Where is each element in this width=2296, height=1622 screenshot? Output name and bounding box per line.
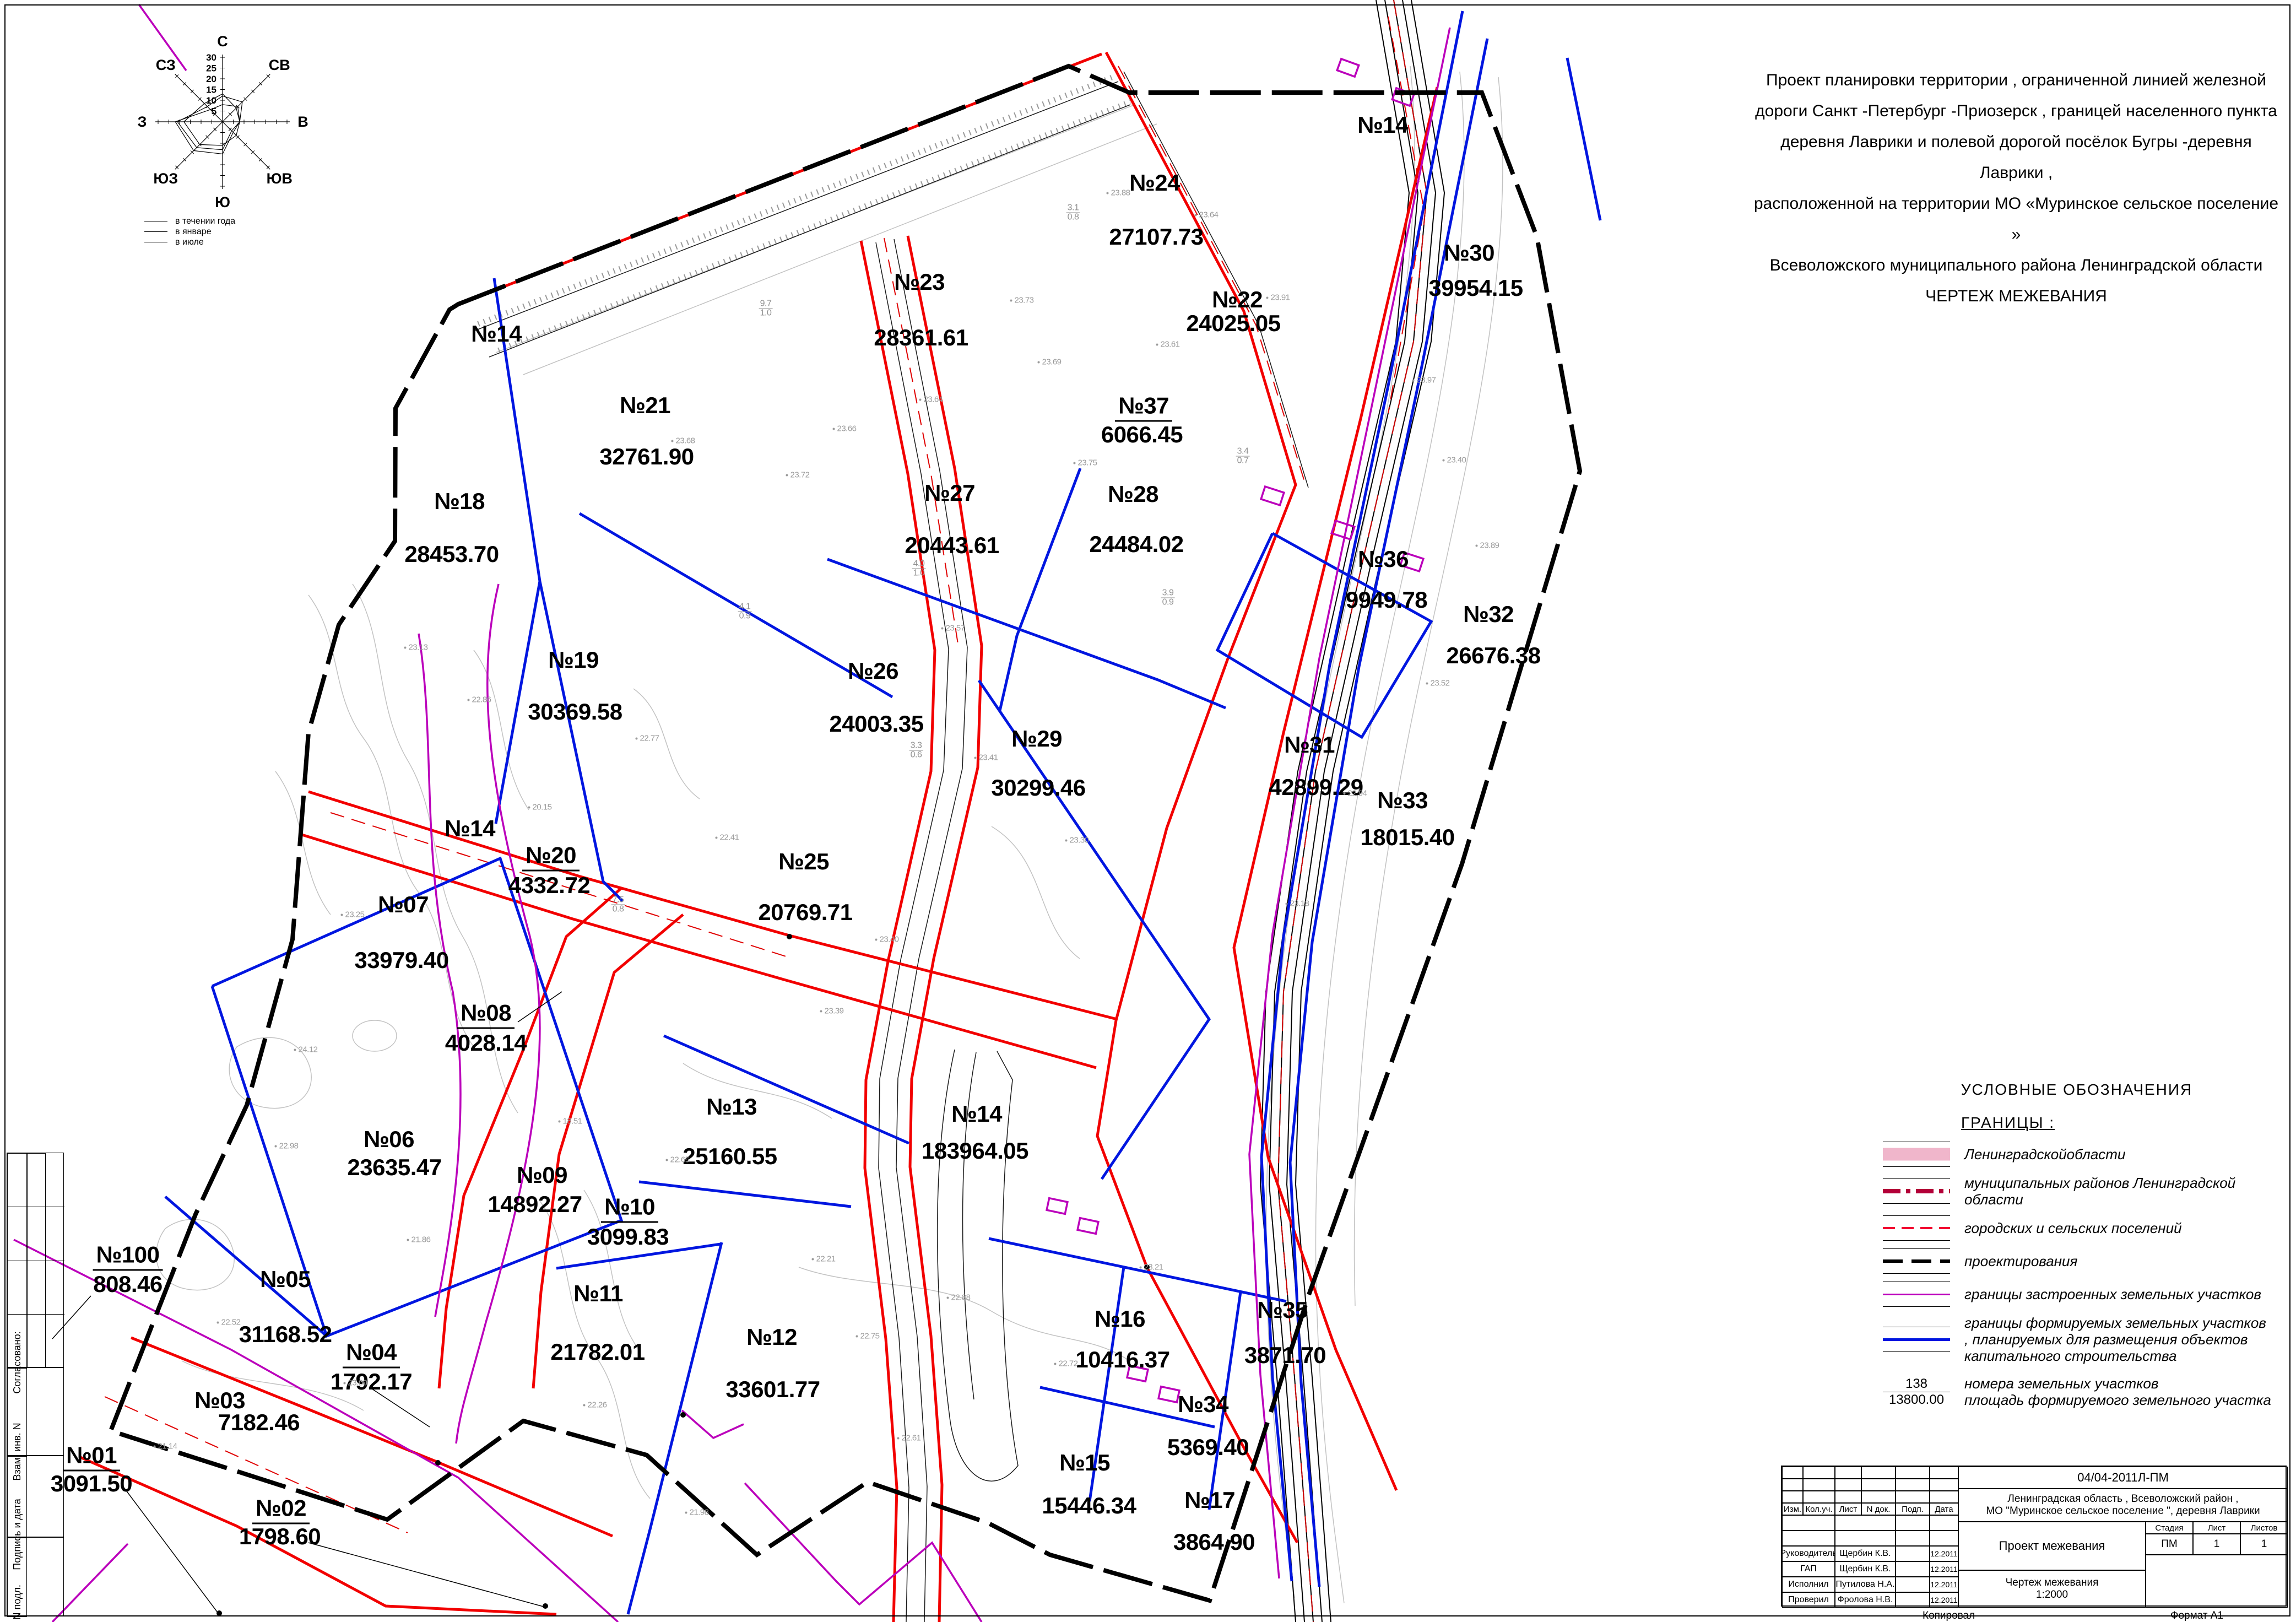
svg-text:СЗ: СЗ xyxy=(156,57,176,73)
spot-dot xyxy=(897,1437,899,1440)
oblast-boundary-swatch xyxy=(1883,1142,1950,1167)
title-line: ЧЕРТЕЖ МЕЖЕВАНИЯ xyxy=(1752,281,2281,312)
legend-numbers-example: 138 13800.00 номера земельных участков п… xyxy=(1873,1375,2281,1408)
spot-elevation: 22.65 xyxy=(665,1155,689,1165)
spot-elevation: 23.40 xyxy=(1442,456,1466,465)
spot-dot xyxy=(407,1239,409,1241)
parcel-number: №11 xyxy=(573,1280,623,1307)
parcel-area: 4028.14 xyxy=(445,1030,527,1056)
spot-elevation: 22.26 xyxy=(583,1401,607,1410)
spot-dot xyxy=(1343,793,1345,795)
spot-elevation: 23.13 xyxy=(404,643,427,652)
parcel-area: 20769.71 xyxy=(758,899,852,926)
spot-elevation: 22.77 xyxy=(635,734,659,743)
tb-date: 12.2011 xyxy=(1930,1546,1958,1561)
svg-text:30: 30 xyxy=(206,52,216,63)
spot-elevation: 23.21 xyxy=(1139,1263,1163,1272)
parcel-number: №24 xyxy=(1129,170,1180,196)
spot-elevation: 23.30 xyxy=(1065,836,1089,845)
spot-elevation: 22.21 xyxy=(811,1255,835,1264)
spot-dot xyxy=(528,807,530,809)
spot-dot xyxy=(941,628,943,630)
tb-list-col: Лист xyxy=(2193,1522,2240,1534)
spot-elevation: 22.98 xyxy=(274,1142,298,1151)
parcel-number: №33 xyxy=(1377,787,1428,814)
parcel-number: №36 xyxy=(1358,546,1409,572)
parcel-number: №32 xyxy=(1463,601,1514,628)
spot-elevation: 23.18 xyxy=(1285,899,1309,909)
parcel-area: 25160.55 xyxy=(683,1143,777,1170)
tb-role: ГАП xyxy=(1782,1561,1835,1577)
spot-elevation: 18.51 xyxy=(558,1117,582,1126)
road-width-note: 9.71.0 xyxy=(759,300,773,318)
legend-line-sample xyxy=(144,221,167,221)
title-line: деревня Лаврики и полевой дорогой посёло… xyxy=(1752,127,2281,188)
parcel-area: 31168.52 xyxy=(239,1321,332,1348)
svg-text:ЮЗ: ЮЗ xyxy=(153,170,178,187)
parcel-area: 32761.90 xyxy=(599,444,694,470)
spot-dot xyxy=(1194,214,1196,217)
road-width-note: 3.30.6 xyxy=(909,742,923,760)
spot-dot xyxy=(1475,545,1477,547)
spot-elevation: 23.61 xyxy=(1156,340,1179,349)
tb-date: 12.2011 xyxy=(1930,1577,1958,1592)
tb-name: Щербин К.В. xyxy=(1835,1546,1896,1561)
road-width-note: 3.40.7 xyxy=(1236,447,1250,466)
parcel-number: №25 xyxy=(778,848,829,875)
legend-label: в течении года xyxy=(175,217,235,226)
parcel-number: №01 xyxy=(63,1442,120,1472)
tb-stage-col: Стадия xyxy=(2146,1522,2193,1534)
parcel-area: 183964.05 xyxy=(922,1138,1028,1164)
parcel-number: №27 xyxy=(924,480,975,506)
spot-dot xyxy=(294,1049,296,1051)
spot-elevation: 23.72 xyxy=(786,471,809,480)
spot-dot xyxy=(1010,300,1012,302)
spot-dot xyxy=(832,428,835,430)
svg-text:В: В xyxy=(297,113,308,130)
legend-item: границы застроенных земельных участков xyxy=(1873,1282,2281,1307)
spot-dot xyxy=(1037,361,1039,364)
legend-label: в январе xyxy=(175,227,211,237)
legend-item: муниципальных районов Ленинградской обла… xyxy=(1873,1175,2281,1208)
parcel-area: 15446.34 xyxy=(1042,1493,1136,1519)
parcel-number: №100 xyxy=(93,1242,163,1271)
tb-listov-val: 1 xyxy=(2240,1534,2288,1555)
wind-rose-legend-row: в январе xyxy=(144,226,235,237)
spot-dot xyxy=(671,440,673,442)
spot-dot xyxy=(1106,192,1108,194)
spot-dot xyxy=(855,1336,858,1338)
parcel-number: №26 xyxy=(848,658,898,684)
strip-inv-podl: Инв. N подл. xyxy=(12,1585,23,1622)
spot-dot xyxy=(558,1121,560,1123)
spot-dot xyxy=(811,1258,814,1261)
spot-dot xyxy=(1285,903,1287,905)
spot-dot xyxy=(1442,459,1444,462)
svg-text:20: 20 xyxy=(206,74,216,84)
tb-name: Фролова Н.В. xyxy=(1835,1592,1896,1608)
tb-role: Проверил xyxy=(1782,1592,1835,1608)
tb-col-ndok: N док. xyxy=(1861,1503,1896,1515)
parcel-area: 33601.77 xyxy=(725,1376,820,1403)
tb-role: Руководитель xyxy=(1782,1546,1835,1561)
parcel-area: 28453.70 xyxy=(404,541,499,567)
spot-elevation: 23.57 xyxy=(941,624,965,633)
road-width-note: 3.10.8 xyxy=(1066,204,1080,222)
parcel-area: 6066.45 xyxy=(1101,421,1183,448)
road-width-note: 7.50.8 xyxy=(611,896,625,914)
spot-elevation: 23.91 xyxy=(1266,293,1290,302)
parcel-area: 23635.47 xyxy=(347,1154,441,1181)
spot-dot xyxy=(635,738,637,740)
spot-dot xyxy=(1156,344,1158,346)
legend-label: в июле xyxy=(175,237,204,247)
parcel-area: 24025.05 xyxy=(1186,310,1280,337)
spot-dot xyxy=(340,914,343,916)
spot-elevation: 22.94 xyxy=(1343,789,1367,798)
spot-dot xyxy=(1412,380,1414,382)
drawing-sheet: Согласовано: Взам. инв. N Подпись и дата… xyxy=(0,0,2296,1622)
parcel-number-example: 138 13800.00 xyxy=(1883,1376,1950,1408)
title-line: Всеволожского муниципального района Лени… xyxy=(1752,250,2281,281)
parcel-area: 808.46 xyxy=(93,1271,162,1297)
spot-elevation: 23.88 xyxy=(1106,188,1130,198)
parcel-area: 14892.27 xyxy=(488,1191,582,1218)
svg-text:15: 15 xyxy=(206,85,216,95)
tb-location: Ленинградская область , Всеволожский рай… xyxy=(1958,1489,2288,1522)
tb-role: Исполнил xyxy=(1782,1577,1835,1592)
tb-col-data: Дата xyxy=(1930,1503,1958,1515)
parcel-number: №13 xyxy=(706,1094,757,1120)
parcel-area: 3099.83 xyxy=(587,1224,669,1250)
legend-title: УСЛОВНЫЕ ОБОЗНАЧЕНИЯ xyxy=(1873,1081,2281,1099)
spot-dot xyxy=(216,1322,219,1324)
parcel-number: №10 xyxy=(601,1194,658,1223)
tb-col-list: Лист xyxy=(1835,1503,1861,1515)
parcel-number: №23 xyxy=(894,269,945,295)
parcel-area: 1792.17 xyxy=(331,1369,412,1395)
spot-dot xyxy=(685,1512,687,1514)
parcel-area: 3871.70 xyxy=(1244,1342,1326,1369)
road-width-note: 4.01.0 xyxy=(912,560,926,578)
map-legend: УСЛОВНЫЕ ОБОЗНАЧЕНИЯ ГРАНИЦЫ : Ленинград… xyxy=(1873,1081,2281,1408)
legend-item-label: границы формируемых земельных участков ,… xyxy=(1964,1315,2273,1364)
parcel-number: №31 xyxy=(1284,732,1335,758)
parcel-area: 20443.61 xyxy=(905,532,999,559)
parcel-area: 27107.73 xyxy=(1109,224,1203,250)
spot-elevation: 23.66 xyxy=(832,424,856,434)
spot-elevation: 23.39 xyxy=(820,1007,843,1016)
svg-text:25: 25 xyxy=(206,63,216,74)
legend-item: Ленинградскойобласти xyxy=(1873,1142,2281,1167)
spot-elevation: 23.25 xyxy=(340,910,364,920)
parcel-number: №37 xyxy=(1115,393,1172,422)
parcel-area: 10416.37 xyxy=(1075,1347,1169,1373)
parcel-area: 3091.50 xyxy=(51,1470,132,1497)
spot-dot xyxy=(946,1297,949,1299)
title-line: Проект планировки территории , ограничен… xyxy=(1752,65,2281,96)
municipal-boundary-swatch xyxy=(1883,1178,1950,1204)
spot-dot xyxy=(1065,840,1067,842)
tb-stage-val: ПМ xyxy=(2146,1534,2193,1555)
legend-item: проектирования xyxy=(1873,1248,2281,1274)
parcel-number: №19 xyxy=(548,647,599,673)
tb-format: Формат А1 xyxy=(2170,1610,2223,1622)
spot-dot xyxy=(404,647,406,649)
spot-elevation: 23.73 xyxy=(1010,296,1033,305)
parcel-number: №22 xyxy=(1212,286,1263,313)
tb-col-koluch: Кол.уч. xyxy=(1803,1503,1835,1515)
parcel-number: №14 xyxy=(1357,112,1408,138)
legend-item-label: городских и сельских поселений xyxy=(1964,1220,2182,1236)
parcel-number: №15 xyxy=(1059,1450,1110,1476)
spot-dot xyxy=(875,939,877,941)
parcel-number: №07 xyxy=(378,891,429,918)
spot-elevation: 22.41 xyxy=(715,833,739,842)
tb-name: Щербин К.В. xyxy=(1835,1561,1896,1577)
spot-dot xyxy=(919,399,921,401)
parcel-number: №08 xyxy=(457,1000,515,1029)
spot-dot xyxy=(974,757,976,759)
parcel-number: №28 xyxy=(1108,481,1158,507)
parcel-number: №06 xyxy=(364,1126,414,1153)
spot-dot xyxy=(1139,1267,1141,1269)
parcel-number: №18 xyxy=(434,488,485,515)
parcel-number: №21 xyxy=(620,392,670,419)
tb-name: Путилова Н.А. xyxy=(1835,1577,1896,1592)
title-line: расположенной на территории МО «Муринско… xyxy=(1752,188,2281,250)
svg-text:З: З xyxy=(138,113,147,130)
tb-drawing: Чертеж межевания 1:2000 xyxy=(1958,1570,2146,1608)
spot-elevation: 22.75 xyxy=(855,1332,879,1341)
spot-elevation: 23.41 xyxy=(974,753,998,763)
road-width-note: 4.10.9 xyxy=(738,603,752,621)
spot-elevation: 22.52 xyxy=(216,1318,240,1327)
parcel-number: №34 xyxy=(1178,1391,1228,1418)
legend-item: границы формируемых земельных участков ,… xyxy=(1873,1315,2281,1364)
spot-elevation: 23.64 xyxy=(919,395,943,404)
spot-elevation: 22.88 xyxy=(946,1293,970,1302)
spot-dot xyxy=(1073,462,1075,464)
spot-elevation: 21.86 xyxy=(407,1235,430,1245)
parcel-area: 30299.46 xyxy=(991,775,1085,801)
parcel-number: №16 xyxy=(1095,1306,1145,1332)
spot-elevation: 24.12 xyxy=(294,1045,317,1055)
spot-elevation: 23.75 xyxy=(1073,458,1097,468)
spot-dot xyxy=(274,1145,277,1148)
spot-elevation: 21.98 xyxy=(685,1508,708,1517)
parcel-area: 30369.58 xyxy=(528,699,622,725)
svg-text:С: С xyxy=(217,33,228,50)
legend-numbers-labels: номера земельных участков площадь формир… xyxy=(1964,1375,2271,1408)
legend-subtitle: ГРАНИЦЫ : xyxy=(1961,1114,2281,1132)
parcel-number: №09 xyxy=(517,1162,567,1188)
parcel-number: №05 xyxy=(260,1266,311,1293)
svg-text:СВ: СВ xyxy=(269,57,290,73)
settlement-boundary-swatch xyxy=(1883,1215,1950,1241)
parcel-number: №29 xyxy=(1011,726,1062,752)
tb-org-box xyxy=(2146,1555,2288,1608)
parcel-area: 28361.61 xyxy=(874,325,968,351)
parcel-number: №35 xyxy=(1257,1297,1308,1323)
tb-project: Проект межевания xyxy=(1958,1522,2146,1570)
spot-elevation: 22.86 xyxy=(467,695,491,705)
parcel-area: 18015.40 xyxy=(1360,824,1454,851)
spot-dot xyxy=(820,1010,822,1013)
legend-item-label: проектирования xyxy=(1964,1253,2077,1269)
wind-rose-legend: в течении года в январе в июле xyxy=(144,216,235,247)
tb-date: 12.2011 xyxy=(1930,1561,1958,1577)
built-parcel-swatch xyxy=(1883,1282,1950,1307)
spot-elevation: 23.68 xyxy=(671,436,695,446)
spot-elevation: 22.72 xyxy=(1054,1359,1077,1369)
legend-line-sample xyxy=(144,242,167,242)
spot-dot xyxy=(343,1382,345,1385)
title-line: дороги Санкт -Петербург -Приозерск , гра… xyxy=(1752,96,2281,127)
parcel-area: 24003.35 xyxy=(829,711,923,737)
spot-dot xyxy=(467,699,469,701)
parcel-area: 1798.60 xyxy=(239,1523,321,1550)
parcel-area: 24484.02 xyxy=(1089,531,1183,558)
tb-list-val: 1 xyxy=(2193,1534,2240,1555)
spot-elevation: 23.52 xyxy=(1426,679,1449,688)
parcel-area: 5369.40 xyxy=(1167,1434,1249,1461)
legend-item-label: муниципальных районов Ленинградской обла… xyxy=(1964,1175,2273,1208)
parcel-area: 9949.78 xyxy=(1346,587,1427,613)
spot-dot xyxy=(665,1159,668,1161)
parcel-area: 33979.40 xyxy=(354,947,448,974)
spot-elevation: 23.89 xyxy=(1475,541,1499,550)
spot-dot xyxy=(786,474,788,477)
spot-dot xyxy=(583,1404,585,1407)
parcel-number: №17 xyxy=(1184,1487,1235,1513)
design-boundary-swatch xyxy=(1883,1248,1950,1274)
parcel-number: №14 xyxy=(445,815,495,842)
wind-rose-chart: ССВВЮВЮЮЗЗСЗ30252015105 xyxy=(88,22,364,231)
road-width-note: 3.90.9 xyxy=(1161,589,1175,607)
parcel-area: 39954.15 xyxy=(1428,275,1523,301)
wind-rose-legend-row: в течении года xyxy=(144,216,235,226)
spot-elevation: 21.14 xyxy=(153,1442,177,1451)
spot-elevation: 23.40 xyxy=(875,935,898,944)
spot-dot xyxy=(1266,297,1268,299)
tb-document-code: 04/04-2011Л-ПМ xyxy=(1958,1467,2288,1489)
parcel-area: 26676.38 xyxy=(1446,642,1540,669)
parcel-number: №30 xyxy=(1444,240,1494,266)
svg-text:ЮВ: ЮВ xyxy=(267,170,293,187)
legend-line-sample xyxy=(144,231,167,232)
spot-elevation: 23.00 xyxy=(343,1378,367,1388)
formed-parcel-swatch xyxy=(1883,1327,1950,1352)
parcel-number: №14 xyxy=(471,321,522,347)
spot-elevation: 23.64 xyxy=(1194,210,1218,220)
spot-elevation: 23.69 xyxy=(1037,358,1061,367)
spot-elevation: 22.61 xyxy=(897,1434,920,1443)
parcel-number: №20 xyxy=(522,842,580,872)
parcel-area: 4332.72 xyxy=(508,872,590,899)
tb-copied: Копировал xyxy=(1923,1610,1975,1622)
legend-item-label: Ленинградскойобласти xyxy=(1964,1146,2125,1163)
drawing-title: Проект планировки территории , ограничен… xyxy=(1752,65,2281,312)
tb-listov-col: Листов xyxy=(2240,1522,2288,1534)
spot-elevation: 20.15 xyxy=(528,803,551,812)
tb-col-podp: Подп. xyxy=(1896,1503,1930,1515)
parcel-number: №04 xyxy=(343,1339,400,1369)
legend-item-label: границы застроенных земельных участков xyxy=(1964,1286,2261,1302)
svg-text:Ю: Ю xyxy=(215,194,230,210)
parcel-number: №12 xyxy=(746,1324,797,1350)
spot-elevation: 23.97 xyxy=(1412,376,1436,385)
spot-dot xyxy=(1426,683,1428,685)
tb-date: 12.2011 xyxy=(1930,1592,1958,1608)
wind-rose-legend-row: в июле xyxy=(144,237,235,247)
title-block: Изм. Кол.уч. Лист N док. Подп. Дата Руко… xyxy=(1781,1466,2287,1607)
spot-dot xyxy=(715,837,717,839)
parcel-area: 7182.46 xyxy=(218,1409,300,1436)
tb-col-izm: Изм. xyxy=(1782,1503,1803,1515)
legend-item: городских и сельских поселений xyxy=(1873,1215,2281,1241)
parcel-area: 21782.01 xyxy=(550,1339,645,1365)
parcel-number: №14 xyxy=(951,1101,1002,1127)
spot-dot xyxy=(153,1446,155,1448)
parcel-area: 3864.90 xyxy=(1173,1529,1255,1555)
parcel-number: №02 xyxy=(252,1495,310,1524)
spot-dot xyxy=(1054,1363,1056,1365)
